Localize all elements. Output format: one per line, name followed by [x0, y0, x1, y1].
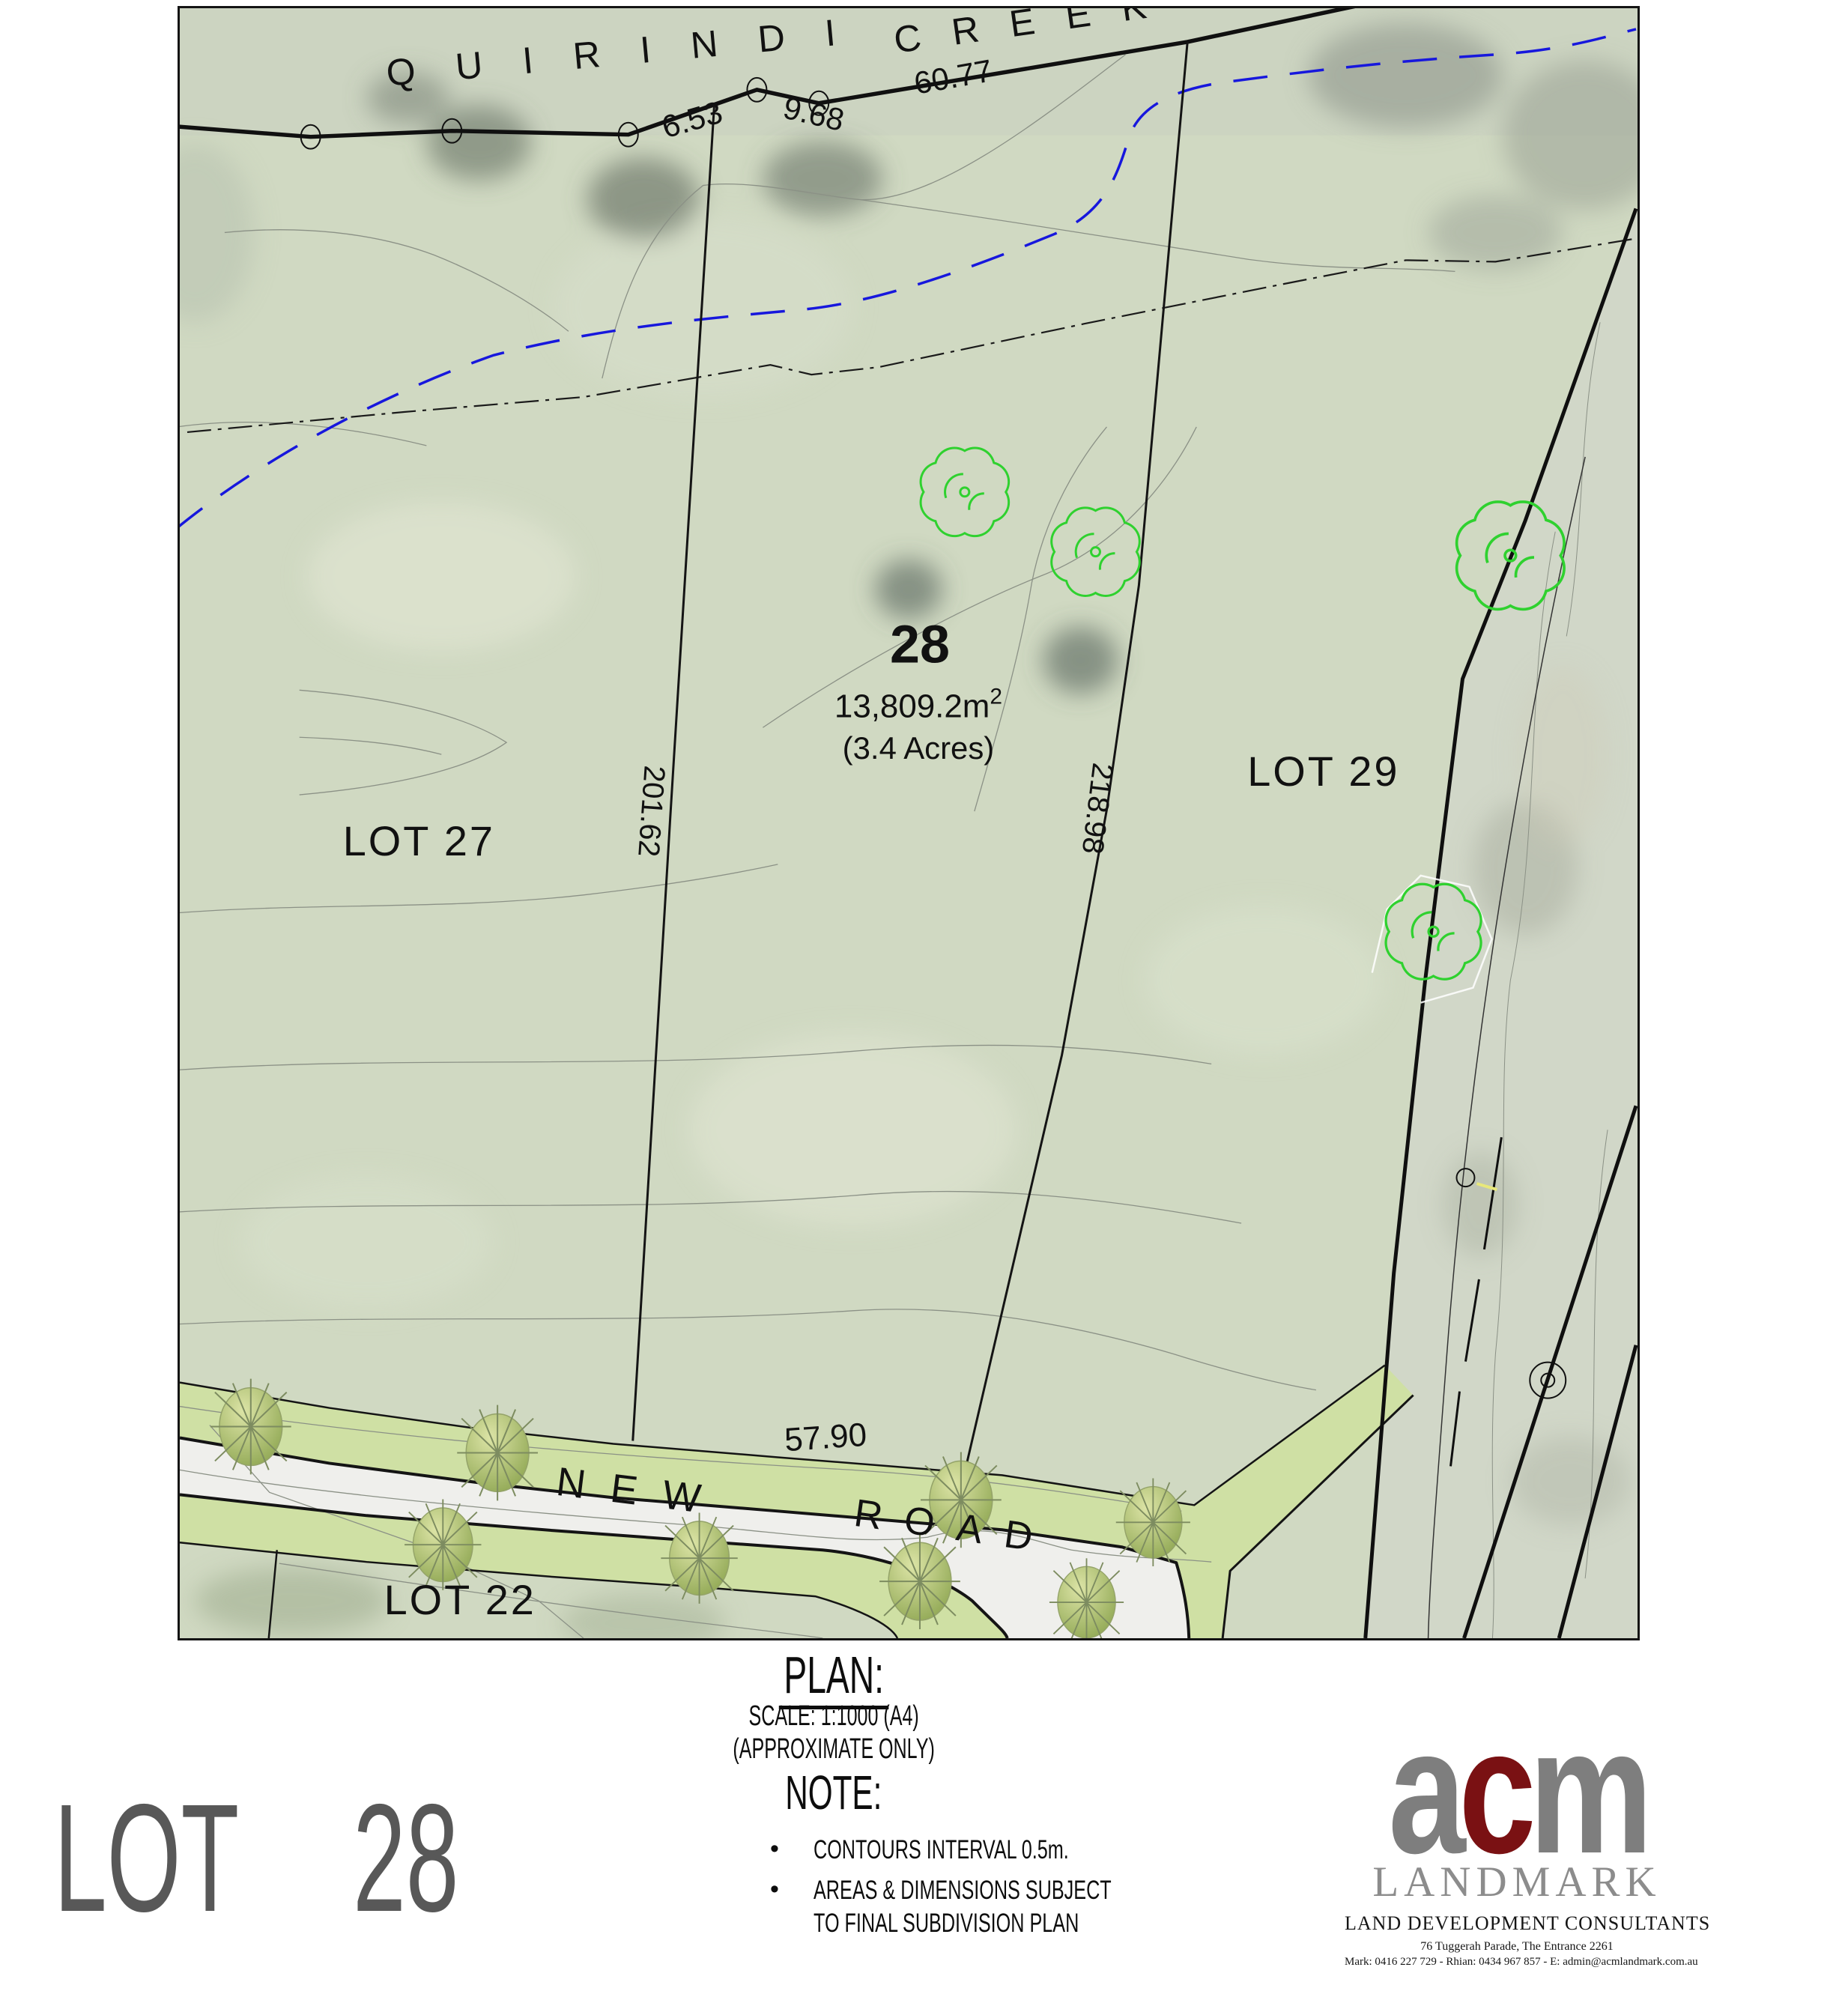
logo-address: 76 Tuggerah Parade, The Entrance 2261	[1345, 1940, 1689, 1954]
logo-acm-wordmark: acm	[1388, 1736, 1645, 1847]
lot-29-label: LOT 29	[1247, 748, 1399, 795]
note-list: • CONTOURS INTERVAL 0.5m. • AREAS & DIME…	[770, 1834, 1227, 1948]
footer-lot-word: LOT	[54, 1772, 239, 1944]
note-bullet-2: • AREAS & DIMENSIONS SUBJECT TO FINAL SU…	[770, 1874, 1227, 1940]
dimension-west-boundary: 201.62	[631, 765, 670, 858]
bullet-icon: •	[770, 1834, 814, 1864]
bullet-icon: •	[770, 1874, 814, 1904]
footer-lot-number: 28	[353, 1772, 458, 1944]
lot-28-area: 13,809.2m2	[834, 684, 1002, 724]
acm-landmark-logo: acm LANDMARK LAND DEVELOPMENT CONSULTANT…	[1345, 1736, 1689, 1969]
plan-approx: (APPROXIMATE ONLY)	[676, 1733, 991, 1766]
page: QUIRINDI CREEK 6.53 9.68 60.77 201.62 21…	[0, 0, 1848, 2003]
footer-lot-title: LOT28	[54, 1781, 458, 1935]
map-canvas: QUIRINDI CREEK 6.53 9.68 60.77 201.62 21…	[180, 8, 1638, 1638]
dimension-road-frontage: 57.90	[784, 1416, 868, 1459]
note-title: NOTE:	[676, 1765, 991, 1820]
logo-contact: Mark: 0416 227 729 - Rhian: 0434 967 857…	[1345, 1956, 1689, 1969]
note-bullet-1: • CONTOURS INTERVAL 0.5m.	[770, 1834, 1227, 1867]
plan-scale: SCALE: 1:1000 (A4)	[676, 1700, 991, 1733]
subdivision-plan-map: QUIRINDI CREEK 6.53 9.68 60.77 201.62 21…	[178, 6, 1640, 1640]
lot-28-number: 28	[890, 614, 950, 674]
plan-title: PLAN:	[676, 1645, 991, 1705]
lot-28-acres: (3.4 Acres)	[843, 730, 995, 766]
lot-27-label: LOT 27	[343, 817, 495, 864]
logo-tagline: LAND DEVELOPMENT CONSULTANTS	[1345, 1912, 1689, 1935]
lot-22-label: LOT 22	[384, 1576, 536, 1623]
